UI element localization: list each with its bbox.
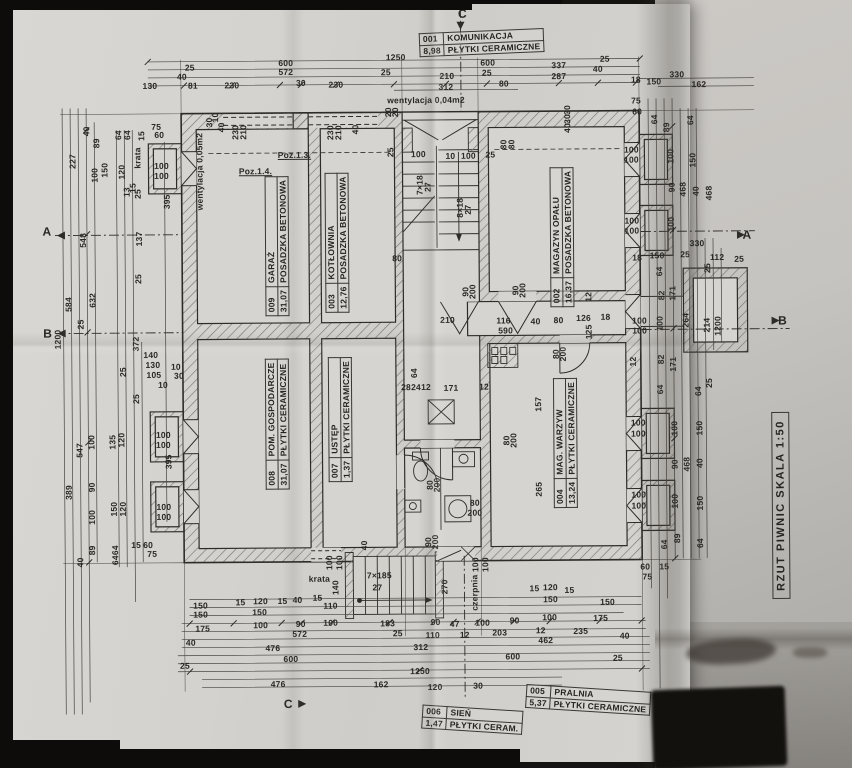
dim-label: 80 — [506, 139, 516, 149]
dim-label: 25 — [180, 661, 190, 671]
dim-label: 600 — [505, 651, 520, 661]
dim-label: 171 — [444, 383, 459, 393]
dim-label: 200 — [517, 283, 527, 298]
dim-label: 150 — [193, 610, 208, 620]
dim-label: 210 — [238, 125, 248, 140]
dim-label: 600 — [283, 654, 298, 664]
dim-label: 90 — [667, 182, 677, 192]
dim-label: 100 — [86, 435, 96, 450]
dim-label: 120 — [428, 682, 443, 692]
dim-label: 30 — [296, 78, 306, 88]
dim-label: 64 — [654, 266, 664, 276]
dim-label: 200 — [558, 347, 568, 362]
dim-label: 120 — [543, 582, 558, 592]
dim-label: 100 — [631, 500, 646, 510]
photo-edge-left — [0, 0, 13, 768]
dim-label: 112 — [710, 252, 724, 262]
dim-label: 162 — [374, 679, 389, 689]
dim-label: 80 — [499, 78, 509, 88]
dim-label: 64 — [655, 384, 665, 394]
dim-label: 25 — [704, 378, 714, 388]
dim-label: 89 — [661, 122, 671, 132]
dim-label: 312 — [413, 642, 428, 652]
dim-label: 1200 — [53, 330, 63, 350]
dim-label: 64 — [409, 368, 419, 378]
dim-label: 100 — [156, 430, 171, 440]
dim-label: 140 — [330, 580, 340, 595]
dim-label: 10 — [445, 151, 455, 161]
dim-label: 100 — [87, 510, 97, 525]
dim-label: 120 — [118, 502, 128, 517]
dim-label: 100 — [156, 440, 171, 450]
dim-label: 12 — [460, 630, 470, 640]
dim-label: 89 — [87, 545, 97, 555]
dim-label: 15 — [278, 596, 288, 606]
dim-label: 203 — [492, 627, 507, 637]
dim-label: 80 — [554, 315, 564, 325]
dim-label: 150 — [687, 153, 697, 168]
dim-label: 126 — [576, 313, 591, 323]
dim-label: 100 — [480, 557, 490, 572]
dim-label: 60 — [154, 130, 164, 140]
dim-label: 25 — [600, 54, 610, 64]
dim-label: 120 — [116, 165, 126, 180]
dim-label: 89 — [672, 533, 682, 543]
dim-label: 100 — [655, 316, 665, 331]
dim-label: 100 — [154, 171, 169, 181]
dim-label: 40 — [177, 72, 187, 82]
dim-label: 100 — [624, 216, 639, 226]
dim-label: 25 — [131, 394, 141, 404]
dim-label: 100 — [542, 612, 557, 622]
dim-label: 28 — [401, 382, 411, 392]
dim-label: 82 — [656, 354, 666, 364]
dim-label: 47 — [450, 619, 460, 629]
dim-label: 27 — [463, 205, 473, 215]
dim-label: 468 — [704, 186, 714, 201]
dim-label: 60 — [640, 561, 650, 571]
dim-label: 171 — [668, 357, 678, 372]
dim-label: 200 — [467, 508, 482, 518]
dim-label: 25 — [133, 274, 143, 284]
dim-label: 150 — [600, 597, 615, 607]
dim-label: 64 — [659, 539, 669, 549]
dim-label: 105 — [146, 370, 161, 380]
dim-label: 12 — [583, 292, 593, 302]
dim-label: 468 — [682, 457, 692, 472]
dim-label: 130 — [142, 81, 157, 91]
dim-label: 100 — [156, 502, 171, 512]
dim-label: 1250 — [386, 52, 406, 62]
dim-label: 125 — [584, 324, 594, 339]
dim-label: 40 — [593, 64, 603, 74]
annotation-label: wentylacja 0,05m2 — [194, 133, 205, 211]
dim-label: 462 — [538, 635, 553, 645]
dim-label: 100 — [670, 494, 680, 509]
dim-label: 210 — [440, 315, 455, 325]
dim-label: 64 — [649, 114, 659, 124]
dim-label: 100 — [324, 555, 334, 570]
dim-label: 25 — [381, 67, 391, 77]
dim-label: 90 — [510, 615, 520, 625]
dim-label: 40 — [531, 316, 541, 326]
dim-label: 40 — [186, 638, 196, 648]
dim-label: 265 — [534, 482, 544, 497]
dim-label: 20 — [390, 107, 400, 117]
dim-label: 372 — [131, 337, 141, 352]
dim-label: 64 — [110, 545, 120, 555]
dim-label: 64 — [693, 386, 703, 396]
dim-label: 24 — [411, 382, 421, 392]
dim-label: 110 — [323, 601, 337, 611]
dim-label: 210 — [439, 71, 454, 81]
dim-label: 10 — [210, 113, 220, 123]
dim-label: 572 — [292, 629, 307, 639]
photo-of-floor-plan: 001KOMUNIKACJA 8,98PŁYTKI CERAMICZNE 009… — [0, 0, 852, 768]
dim-label: 15 — [529, 583, 539, 593]
dim-label: 1250 — [410, 666, 430, 676]
dim-label: 18 — [632, 252, 642, 262]
dim-label: 15 — [136, 131, 146, 141]
dim-label: 27 — [423, 182, 433, 192]
photo-edge-bottom-left — [0, 740, 120, 768]
dim-label: 25 — [734, 254, 744, 264]
dim-label: 25 — [485, 150, 495, 160]
dim-label: 183 — [380, 618, 395, 628]
dim-label: 100 — [334, 555, 344, 570]
dim-label: 100 — [89, 168, 99, 183]
dim-label: 40 — [75, 557, 85, 567]
dim-label: 81 — [188, 81, 198, 91]
dim-label: 476 — [265, 643, 280, 653]
dim-label: 200 — [430, 535, 440, 550]
dim-label: 12 — [479, 382, 489, 392]
dim-label: 100 — [411, 149, 426, 159]
dim-label: 210 — [333, 125, 343, 140]
dim-label: 12 — [628, 357, 638, 367]
dim-label: 27 — [372, 582, 382, 592]
dim-label: 40 — [293, 595, 303, 605]
dim-label: 150 — [695, 496, 705, 511]
dim-label: 150 — [646, 76, 661, 86]
dim-label: 395 — [163, 454, 173, 469]
dim-label: 25 — [133, 189, 143, 199]
dim-label: 100 — [631, 417, 646, 427]
dim-label: 40 — [691, 186, 701, 196]
dim-label: 312 — [438, 82, 453, 92]
dim-label: 30 — [473, 681, 483, 691]
dim-label: 40 — [695, 458, 705, 468]
dim-label: 100 — [253, 620, 268, 630]
dim-label: 100 — [666, 217, 676, 232]
dim-label: 64 — [122, 130, 132, 140]
dim-label: 171 — [667, 286, 677, 301]
dim-label: 130 — [145, 360, 160, 370]
dim-label: 64 — [695, 538, 705, 548]
dim-label: 12 — [421, 382, 431, 392]
dim-label: 64 — [685, 115, 695, 125]
dim-label: 632 — [87, 293, 97, 308]
dim-label: 200 — [467, 284, 477, 299]
dim-label: 100 — [461, 151, 476, 161]
dim-label: 600 — [480, 58, 495, 68]
dim-label: 227 — [67, 154, 77, 169]
dim-label: 157 — [533, 397, 543, 412]
dim-label: 395 — [162, 194, 172, 209]
dim-label: B — [43, 327, 52, 341]
dim-label: 80 — [470, 498, 480, 508]
annotation-label: czerpnia — [469, 575, 479, 611]
dim-label: 40 — [359, 540, 369, 550]
dim-label: 75 — [147, 549, 157, 559]
annotation-label: krata — [309, 574, 330, 584]
dim-label: 287 — [551, 71, 566, 81]
dim-label: 337 — [551, 60, 566, 70]
annotation-label: wentylacja 0,04m2 — [387, 95, 465, 106]
photo-edge-top-right — [472, 0, 562, 4]
annotation-label: Poz.1.4. — [239, 166, 272, 176]
dim-label: 1200 — [713, 316, 723, 336]
dim-label: 25 — [702, 263, 712, 273]
dim-label: 200 — [508, 433, 518, 448]
dim-label: 30 — [174, 371, 184, 381]
dim-label: 200 — [432, 477, 442, 492]
annotation-label: 7×185 — [367, 570, 392, 580]
dim-label: 150 — [99, 163, 109, 178]
dim-label: 18 — [601, 312, 611, 322]
dim-label: 389 — [64, 485, 74, 500]
dim-label: 10 — [158, 380, 168, 390]
dim-label: 150 — [252, 607, 267, 617]
dim-label: 25 — [482, 68, 492, 78]
annotation-label: krata — [132, 147, 142, 168]
dim-label: 547 — [74, 443, 84, 458]
dim-label: 100 — [665, 149, 675, 164]
dim-label: 100 — [631, 428, 646, 438]
dim-label: 100 — [669, 421, 679, 436]
dim-label: 75 — [642, 571, 652, 581]
dim-label: 120 — [116, 433, 126, 448]
dim-label: 82 — [656, 290, 666, 300]
dim-label: 100 — [154, 161, 169, 171]
dim-label: 40 — [562, 123, 572, 133]
dim-label: 230 — [328, 80, 343, 90]
dim-label: 150 — [694, 421, 704, 436]
dim-label: 476 — [271, 679, 286, 689]
dim-label: 12 — [536, 625, 546, 635]
dim-label: 40 — [216, 122, 226, 132]
dim-label: 330 — [690, 238, 705, 248]
dim-label: 162 — [691, 79, 706, 89]
dim-label: 120 — [253, 596, 268, 606]
dim-label: 80 — [392, 253, 402, 263]
dim-label: 110 — [426, 630, 440, 640]
dim-label: 100 — [632, 325, 647, 335]
dim-label: 100 — [475, 618, 490, 628]
dim-label: 100 — [632, 315, 647, 325]
dim-label: 15 — [236, 597, 246, 607]
dim-label: 40 — [350, 125, 360, 135]
dim-label: 25 — [385, 147, 395, 157]
dim-label: A — [742, 228, 751, 242]
dim-label: 25 — [613, 653, 623, 663]
dim-label: 175 — [593, 613, 608, 623]
dim-label: 25 — [76, 319, 86, 329]
dim-label: 64 — [110, 555, 120, 565]
dim-label: 264 — [681, 313, 691, 328]
dim-label: 100 — [470, 557, 480, 572]
dim-label: 270 — [439, 579, 449, 594]
annotation-label: Poz.1.3. — [278, 150, 311, 160]
dim-label: 75 — [631, 95, 641, 105]
dim-label: 230 — [224, 80, 239, 90]
dim-label: 150 — [650, 250, 665, 260]
photo-edge-top — [0, 0, 472, 10]
dark-stamp-block — [651, 686, 788, 768]
dim-label: 90 — [431, 617, 441, 627]
dim-label: 40 — [81, 126, 91, 136]
dim-label: 25 — [393, 628, 403, 638]
dim-label: 137 — [134, 232, 144, 247]
dim-label: 140 — [143, 350, 158, 360]
dim-label: 150 — [543, 594, 558, 604]
dim-label: 330 — [669, 69, 684, 79]
dim-label: 572 — [278, 67, 293, 77]
dim-label: 468 — [678, 182, 688, 197]
dim-label: 89 — [91, 138, 101, 148]
dim-label: 175 — [195, 624, 210, 634]
dim-label: 15 — [564, 585, 574, 595]
dim-label: 25 — [680, 249, 690, 259]
dim-label: 100 — [631, 489, 646, 499]
dim-label: 25 — [118, 367, 128, 377]
dim-label: 235 — [573, 626, 588, 636]
dim-label: 60 — [632, 106, 642, 116]
dim-label: 100 — [624, 155, 639, 165]
dim-label: A — [42, 225, 51, 239]
dim-label: 590 — [498, 325, 513, 335]
dim-label: 548 — [78, 233, 88, 248]
dim-label: 100 — [323, 618, 338, 628]
dim-label: 116 — [496, 315, 510, 325]
dim-label: 15 — [659, 561, 669, 571]
dim-label: 15 — [313, 593, 323, 603]
dim-label: 40 — [620, 631, 630, 641]
dim-label: 214 — [702, 318, 712, 333]
dim-label: 90 — [296, 619, 306, 629]
dim-label: 100 — [625, 226, 640, 236]
dim-label: B — [778, 313, 787, 327]
dim-label: 90 — [87, 482, 97, 492]
dim-label: 584 — [63, 297, 73, 312]
dim-label: 100 — [624, 145, 639, 155]
dim-label: C — [284, 697, 293, 711]
dim-label: 90 — [670, 459, 680, 469]
dim-label: 18 — [631, 74, 641, 84]
dim-label: 15 — [131, 540, 141, 550]
dim-label: 100 — [156, 512, 171, 522]
blurred-mark-small — [793, 647, 827, 658]
